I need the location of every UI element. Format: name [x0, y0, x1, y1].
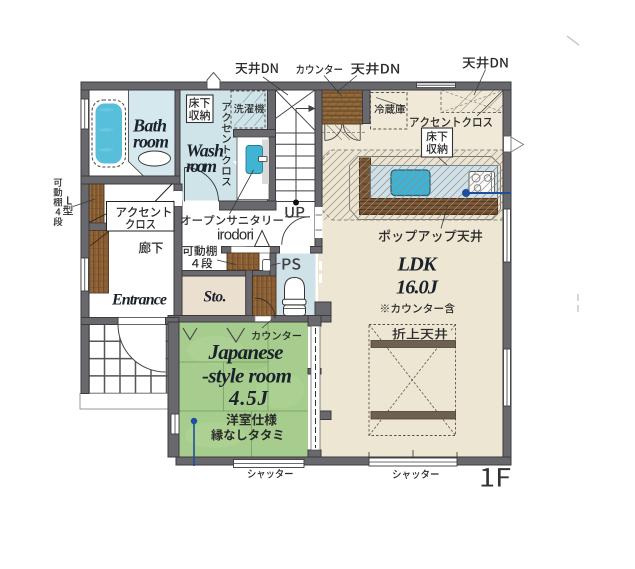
svg-text:16.0J: 16.0J — [396, 277, 439, 299]
svg-text:Japanese: Japanese — [208, 340, 284, 364]
svg-text:4.5J: 4.5J — [228, 386, 270, 410]
svg-text:room: room — [186, 156, 217, 176]
svg-text:room: room — [133, 132, 169, 152]
svg-text:irodori: irodori — [217, 227, 254, 244]
svg-text:-style room: -style room — [202, 364, 292, 388]
svg-text:LDK: LDK — [397, 254, 438, 276]
svg-text:Sto.: Sto. — [204, 289, 227, 306]
svg-text:Entrance: Entrance — [111, 292, 167, 309]
